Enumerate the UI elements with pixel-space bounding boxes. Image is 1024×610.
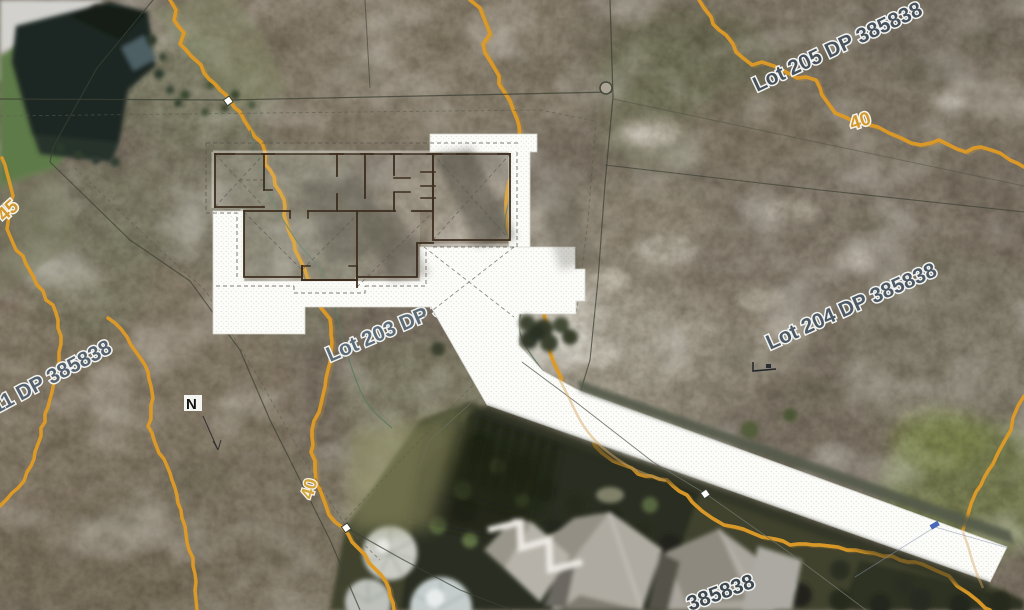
svg-text:N: N [186,396,197,413]
